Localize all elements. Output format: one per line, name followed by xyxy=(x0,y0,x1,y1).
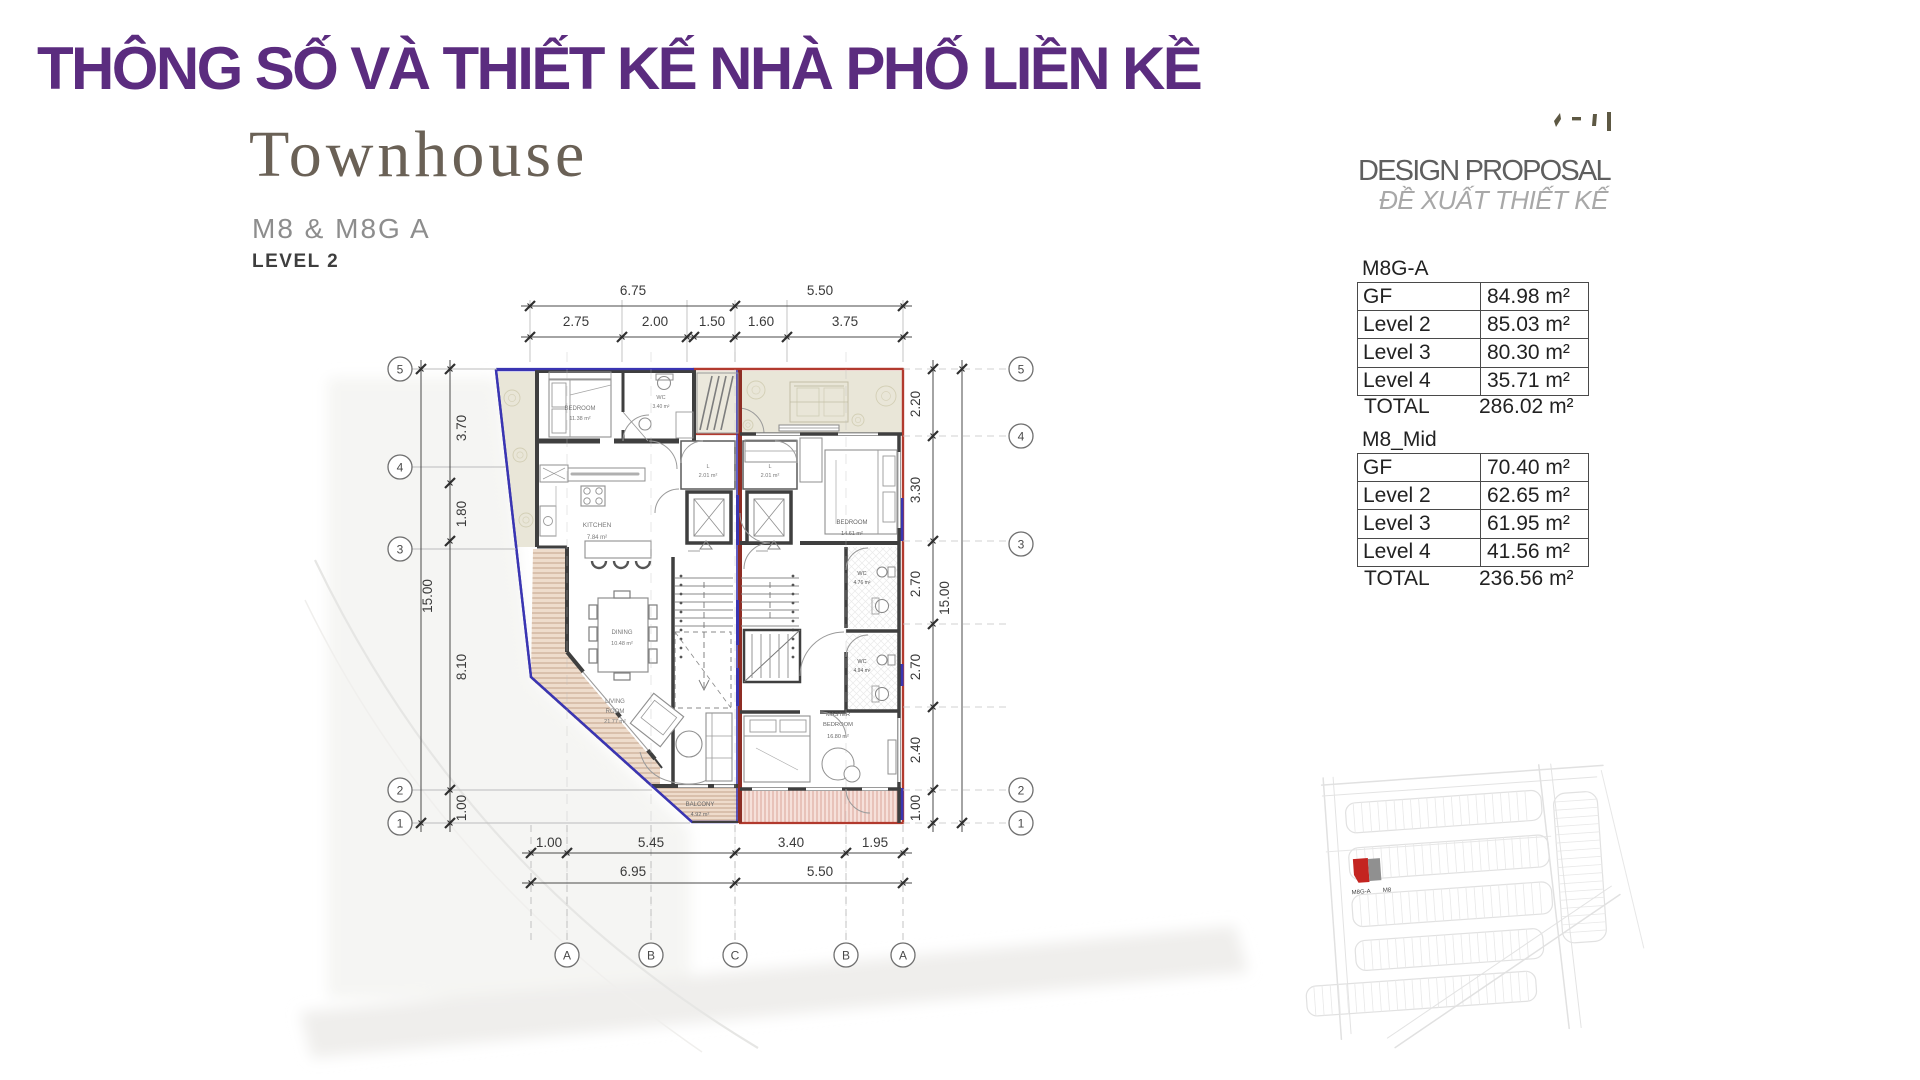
svg-text:6.95: 6.95 xyxy=(620,864,646,879)
svg-text:2.70: 2.70 xyxy=(908,571,923,597)
svg-text:A: A xyxy=(899,949,907,963)
svg-text:2.01 m²: 2.01 m² xyxy=(761,473,780,479)
svg-text:1.60: 1.60 xyxy=(748,314,774,329)
svg-text:15.00: 15.00 xyxy=(420,579,435,613)
svg-text:1.50: 1.50 xyxy=(699,314,725,329)
svg-text:2: 2 xyxy=(397,784,404,798)
svg-text:1.00: 1.00 xyxy=(454,795,469,821)
svg-text:C: C xyxy=(731,949,740,963)
svg-text:WC: WC xyxy=(857,659,866,665)
svg-text:2.00: 2.00 xyxy=(642,314,668,329)
svg-text:1.80: 1.80 xyxy=(454,501,469,527)
svg-text:1.00: 1.00 xyxy=(908,795,923,821)
svg-text:14.61 m²: 14.61 m² xyxy=(841,531,863,537)
svg-text:KITCHEN: KITCHEN xyxy=(583,522,612,529)
svg-text:ROOM: ROOM xyxy=(606,709,625,715)
svg-text:5.50: 5.50 xyxy=(807,283,833,298)
svg-text:MASTER: MASTER xyxy=(826,712,850,718)
svg-text:3.75: 3.75 xyxy=(832,314,858,329)
svg-text:1.95: 1.95 xyxy=(862,835,888,850)
svg-text:1: 1 xyxy=(1018,817,1025,831)
svg-text:4.92 m²: 4.92 m² xyxy=(691,812,710,818)
svg-text:6.75: 6.75 xyxy=(620,283,646,298)
svg-text:4: 4 xyxy=(397,461,404,475)
svg-text:3: 3 xyxy=(1018,538,1025,552)
svg-text:11.38 m²: 11.38 m² xyxy=(569,416,590,422)
svg-text:DINING: DINING xyxy=(612,630,633,636)
svg-text:B: B xyxy=(647,949,655,963)
svg-text:M8: M8 xyxy=(1383,887,1392,894)
svg-text:5.50: 5.50 xyxy=(807,864,833,879)
svg-text:15.00: 15.00 xyxy=(937,581,952,615)
svg-text:L: L xyxy=(768,464,771,470)
svg-text:WC: WC xyxy=(656,395,665,401)
svg-text:2.20: 2.20 xyxy=(908,391,923,417)
svg-text:1.00: 1.00 xyxy=(536,835,562,850)
svg-text:2.70: 2.70 xyxy=(908,654,923,680)
svg-text:5.45: 5.45 xyxy=(638,835,664,850)
svg-text:BEDROOM: BEDROOM xyxy=(836,520,867,526)
svg-text:2.01 m²: 2.01 m² xyxy=(699,473,718,479)
svg-text:1: 1 xyxy=(397,817,404,831)
svg-text:3.40: 3.40 xyxy=(778,835,804,850)
svg-text:4.94 m²: 4.94 m² xyxy=(854,668,871,674)
svg-text:2.75: 2.75 xyxy=(563,314,589,329)
svg-text:A: A xyxy=(563,949,571,963)
svg-text:3.70: 3.70 xyxy=(454,415,469,441)
svg-text:5: 5 xyxy=(1018,363,1025,377)
svg-text:LIVING: LIVING xyxy=(605,699,625,705)
svg-text:4.76 m²: 4.76 m² xyxy=(854,580,871,586)
svg-text:L: L xyxy=(706,464,709,470)
svg-text:3.40 m²: 3.40 m² xyxy=(653,404,670,410)
svg-text:2.40: 2.40 xyxy=(908,737,923,763)
svg-text:2: 2 xyxy=(1018,784,1025,798)
svg-text:WC: WC xyxy=(857,571,866,577)
svg-text:3: 3 xyxy=(397,543,404,557)
svg-text:BEDROOM: BEDROOM xyxy=(564,406,595,412)
svg-text:4: 4 xyxy=(1018,430,1025,444)
svg-text:BEDROOM: BEDROOM xyxy=(823,722,853,728)
svg-text:B: B xyxy=(842,949,850,963)
svg-text:3.30: 3.30 xyxy=(908,477,923,503)
svg-text:5: 5 xyxy=(397,363,404,377)
svg-text:10.48 m²: 10.48 m² xyxy=(611,641,633,647)
svg-text:7.84 m²: 7.84 m² xyxy=(587,535,607,541)
svg-text:21.77 m²: 21.77 m² xyxy=(604,719,626,725)
svg-text:8.10: 8.10 xyxy=(454,654,469,680)
svg-text:BALCONY: BALCONY xyxy=(686,802,715,808)
